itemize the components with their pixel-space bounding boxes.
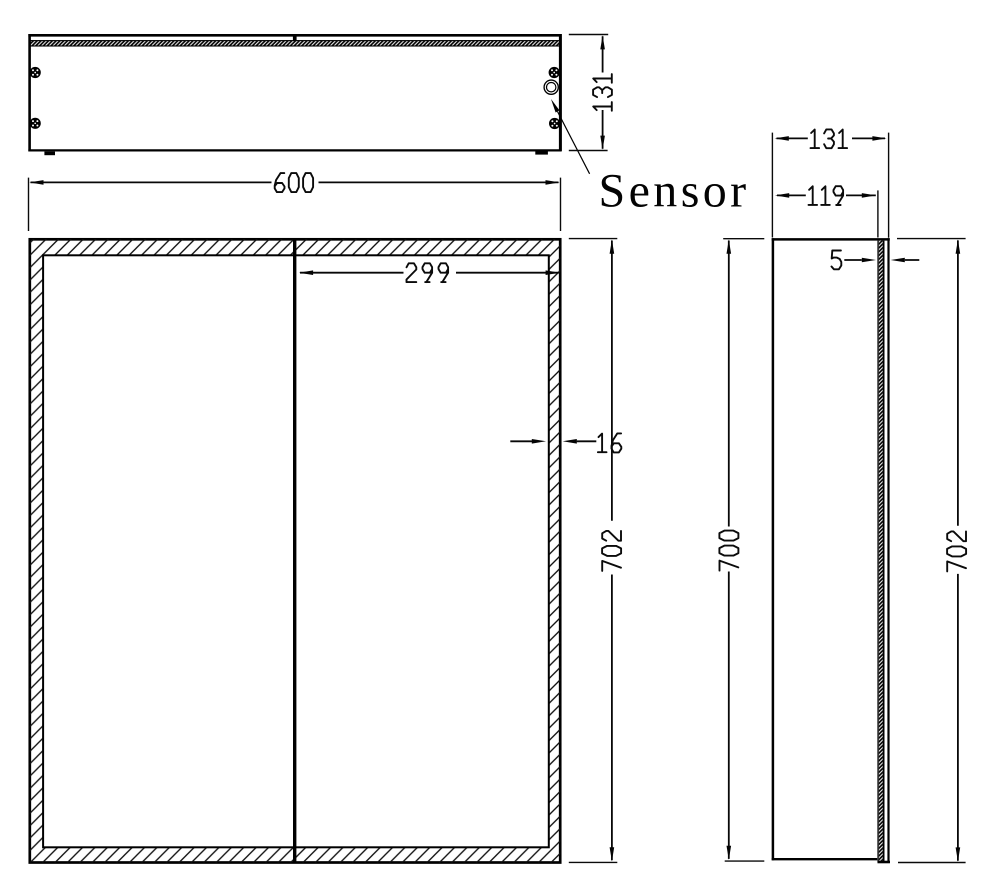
svg-text:Sensor: Sensor (599, 165, 750, 218)
